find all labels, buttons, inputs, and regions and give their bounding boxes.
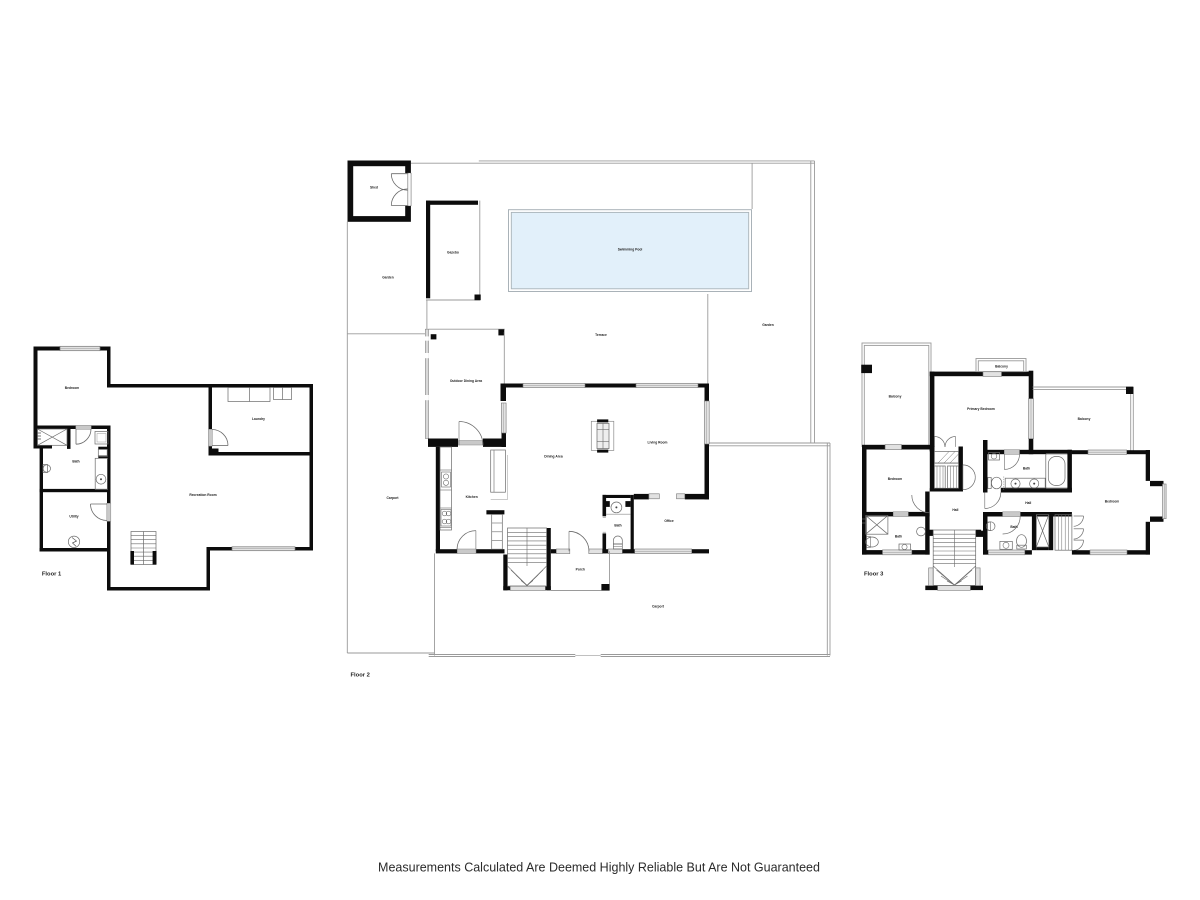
svg-text:Balcony: Balcony — [1078, 417, 1091, 421]
svg-text:Bath: Bath — [72, 460, 79, 464]
svg-text:Hall: Hall — [952, 508, 958, 512]
svg-text:Shed: Shed — [370, 186, 378, 190]
svg-text:Measurements Calculated Are De: Measurements Calculated Are Deemed Highl… — [378, 861, 820, 875]
svg-text:Carport: Carport — [652, 605, 665, 609]
svg-text:Bedroom: Bedroom — [888, 477, 903, 481]
svg-text:Office: Office — [664, 519, 674, 523]
svg-text:Balcony: Balcony — [889, 395, 902, 399]
svg-text:Laundry: Laundry — [252, 417, 265, 421]
svg-text:Floor 2: Floor 2 — [351, 673, 370, 679]
svg-text:Bath: Bath — [614, 524, 621, 528]
svg-text:Bath: Bath — [1010, 525, 1017, 529]
svg-text:Primary Bedroom: Primary Bedroom — [967, 407, 995, 411]
svg-text:Recreation Room: Recreation Room — [189, 493, 216, 497]
svg-text:Garden: Garden — [382, 276, 394, 280]
svg-text:Dining Area: Dining Area — [544, 455, 563, 459]
svg-text:Hall: Hall — [1025, 501, 1031, 505]
svg-text:Bath: Bath — [895, 535, 902, 539]
svg-text:Bath: Bath — [1023, 467, 1030, 471]
svg-text:Swimming Pool: Swimming Pool — [618, 248, 643, 252]
svg-text:Floor 3: Floor 3 — [864, 571, 884, 577]
svg-text:Bedroom: Bedroom — [65, 386, 80, 390]
svg-text:Balcony: Balcony — [995, 365, 1008, 369]
svg-text:Utility: Utility — [69, 515, 78, 519]
svg-text:Kitchen: Kitchen — [466, 495, 478, 499]
svg-text:Living Room: Living Room — [648, 441, 668, 445]
svg-text:Outdoor Dining Area: Outdoor Dining Area — [450, 379, 482, 383]
svg-text:Terrace: Terrace — [595, 333, 607, 337]
svg-text:Porch: Porch — [576, 568, 585, 572]
svg-text:Garden: Garden — [762, 323, 774, 327]
svg-text:Gazebo: Gazebo — [447, 251, 459, 255]
svg-text:Bedroom: Bedroom — [1105, 500, 1120, 504]
svg-text:Floor 1: Floor 1 — [42, 571, 62, 577]
svg-text:Carport: Carport — [387, 496, 400, 500]
